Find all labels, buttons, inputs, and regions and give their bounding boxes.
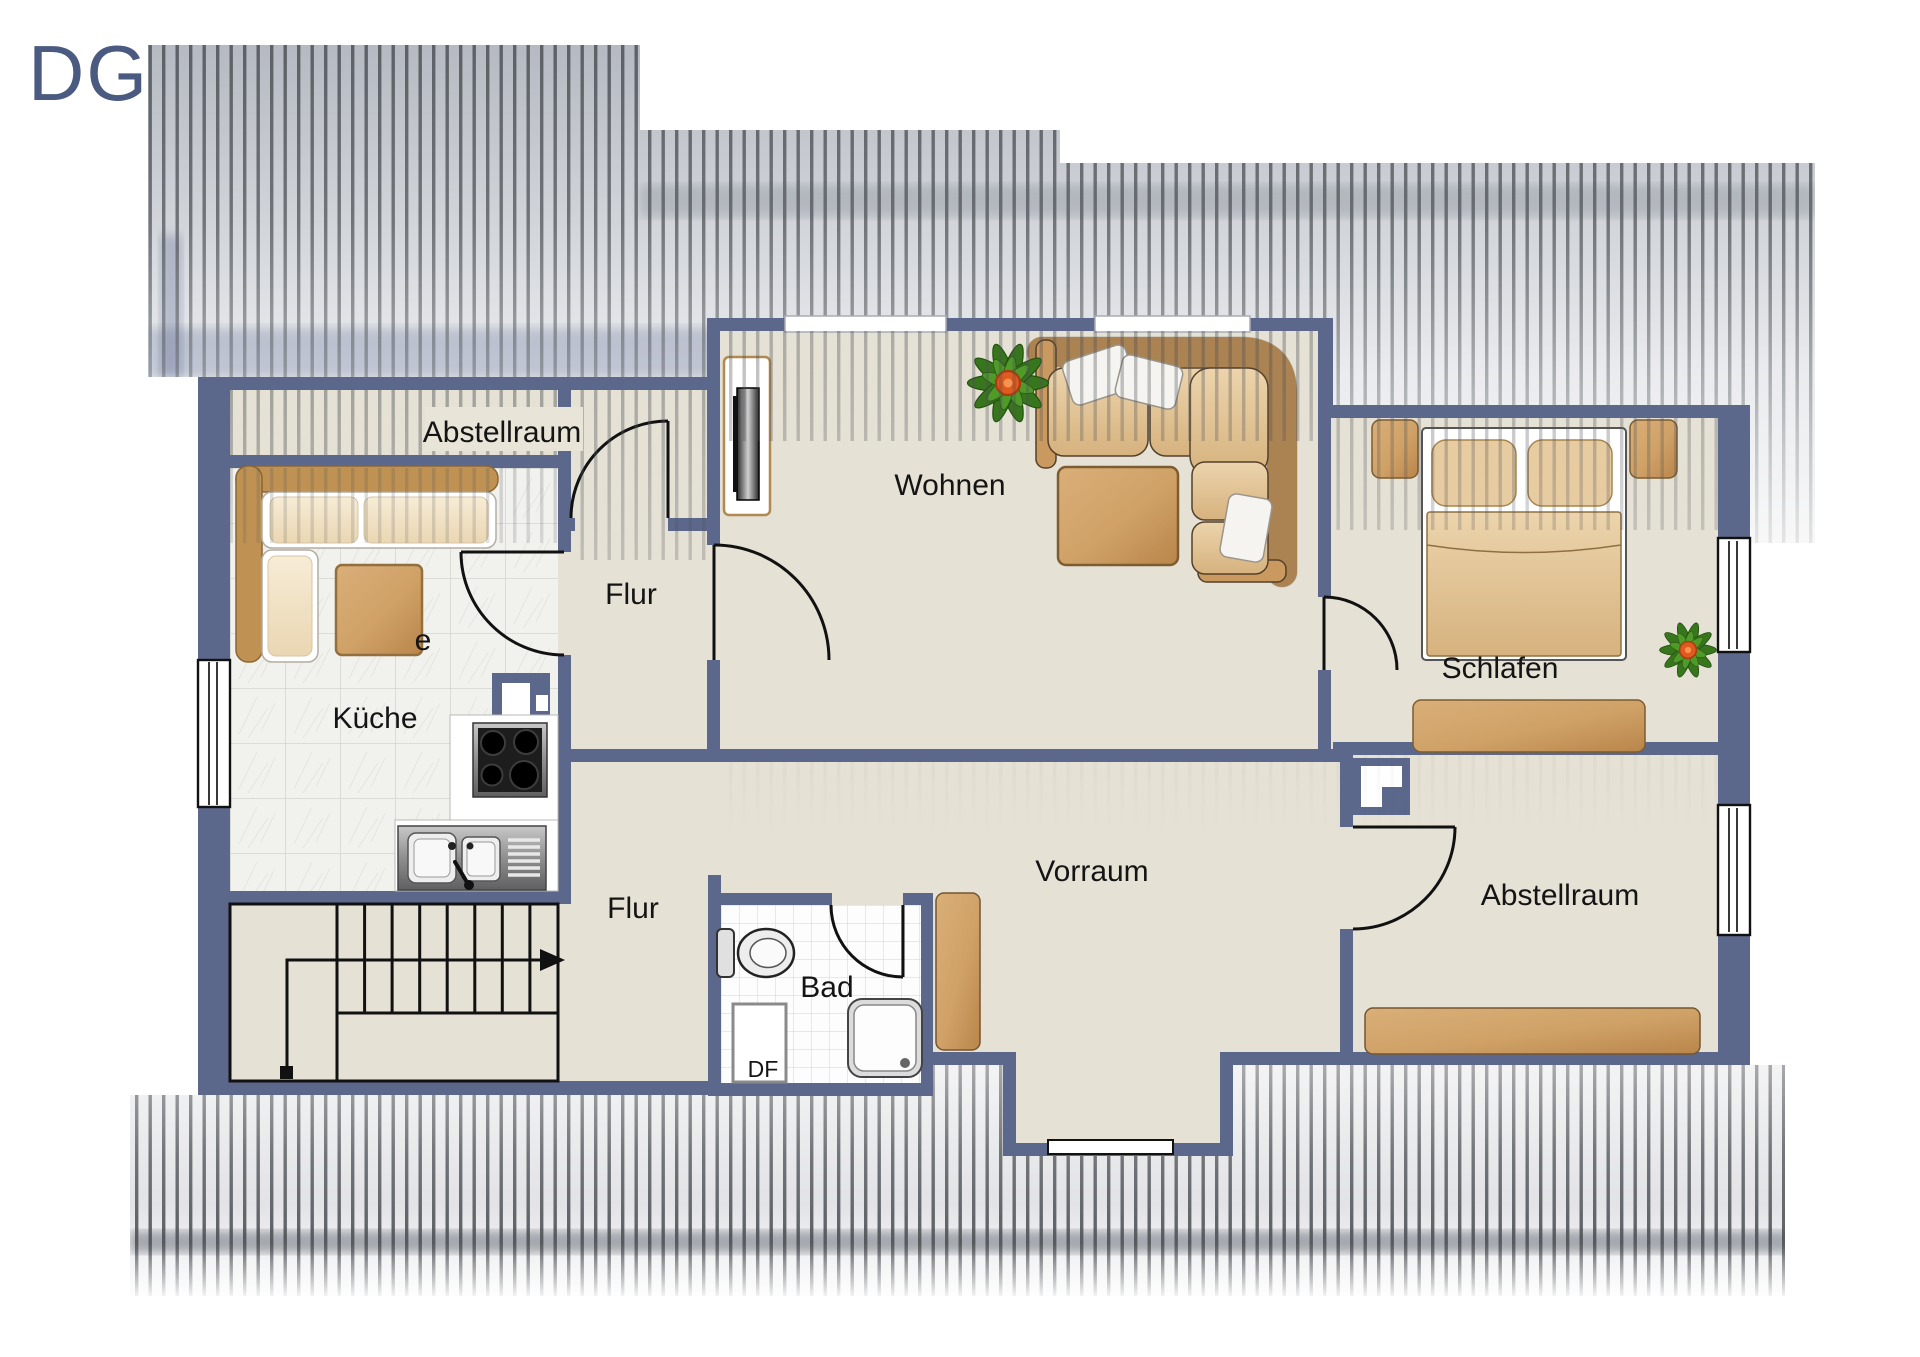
kitchen-sink [398,826,546,890]
coffee-table [1058,467,1178,565]
room-label-partial: e [415,624,432,657]
wall-wohnen-left-upper [707,318,720,545]
wall-right-exterior-1 [1718,405,1750,538]
wall-vorraum-bottom-left [933,1052,1003,1065]
wall-bay-left [1003,1052,1016,1156]
wall-bay-right [1220,1052,1233,1156]
wall-mid-horizontal [558,749,1353,762]
roof-hatch-bottom [130,1060,1790,1300]
wall-right-exterior-3 [1718,935,1750,1065]
window-bay [1048,1140,1173,1154]
wall-bad-bottom [708,1083,933,1096]
wall-wohnen-left-lower [707,660,720,761]
wall-bad-top-left [721,893,832,905]
floorplan-drawing: DG Abstellraum Küche e Flur Wohnen Schla… [0,0,1920,1357]
room-label-flur-upper: Flur [605,578,657,611]
toilet [717,929,794,977]
shower [848,999,922,1077]
wall-kitchen-bottom [230,891,571,904]
window-wohnen-2 [1095,316,1250,332]
room-label-df: DF [748,1056,779,1082]
window-wohnen-1 [785,316,946,332]
blanket [1427,512,1621,656]
wall-bottom-left [198,1081,720,1095]
wall-abstell-divider-lower [1340,929,1353,1065]
window-abstellraum-right [1718,805,1750,935]
room-label-abstellraum-bottom: Abstellraum [1481,879,1639,912]
room-label-bad: Bad [800,971,853,1004]
wall-kitchen-right-lower [558,655,571,891]
room-label-kueche: Küche [332,702,417,735]
room-label-wohnen: Wohnen [894,469,1005,502]
room-label-abstellraum-top: Abstellraum [423,416,581,449]
sideboard-abstellraum [1365,1008,1700,1054]
wall-wohnen-schlafen-upper [1318,417,1331,597]
floorplan-canvas: DG Abstellraum Küche e Flur Wohnen Schla… [0,0,1920,1357]
wall-knee-top-left [198,377,720,390]
wall-abstell-divider-upper [1340,755,1353,827]
wall-right-exterior-2 [1718,652,1750,805]
wall-step-vertical [1318,318,1333,418]
wall-vorraum-bottom-right [1233,1052,1353,1065]
kitchen-table [336,565,422,655]
wardrobe-vorraum [936,893,980,1050]
floor-label: DG [28,29,149,117]
wall-wohnen-schlafen-lower [1318,670,1331,762]
room-label-vorraum: Vorraum [1035,855,1148,888]
room-label-schlafen: Schlafen [1442,652,1559,685]
dresser-schlafen [1413,700,1645,752]
room-label-flur-lower: Flur [607,892,659,925]
window-kitchen-left [198,660,230,807]
wall-bad-left [708,875,721,1095]
window-schlafen-right [1718,538,1750,652]
wall-schlafen-top [1333,405,1750,418]
stove [473,723,547,797]
